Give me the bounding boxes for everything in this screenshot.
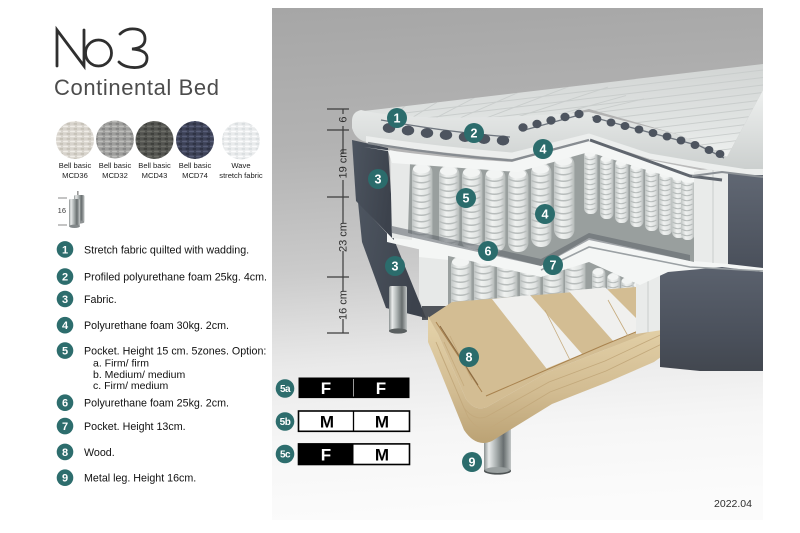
svg-text:F: F [321,379,331,398]
svg-text:3: 3 [375,173,382,187]
svg-text:5b: 5b [280,417,291,428]
svg-text:5: 5 [62,346,68,358]
svg-text:8: 8 [466,351,473,365]
svg-text:a. Firm/ firm: a. Firm/ firm [93,358,149,370]
svg-text:F: F [376,379,386,398]
svg-text:2: 2 [471,127,478,141]
svg-text:2022.04: 2022.04 [714,498,752,510]
svg-text:5c: 5c [280,450,291,461]
svg-text:2: 2 [62,272,68,284]
svg-text:Polyurethane foam 25kg. 2cm.: Polyurethane foam 25kg. 2cm. [84,398,229,410]
svg-text:Pocket. Height 15 cm. 5zones.: Pocket. Height 15 cm. 5zones. Option: [84,346,266,358]
svg-text:5a: 5a [280,384,291,395]
svg-text:19 cm: 19 cm [338,149,350,179]
svg-text:6: 6 [62,398,68,410]
svg-text:1: 1 [62,244,68,256]
svg-text:Profiled polyurethane foam 25k: Profiled polyurethane foam 25kg. 4cm. [84,272,267,284]
svg-text:MCD36: MCD36 [62,171,88,180]
svg-text:5: 5 [463,192,470,206]
svg-text:3: 3 [62,294,68,306]
svg-text:c. Firm/ medium: c. Firm/ medium [93,380,169,392]
svg-text:Bell basic: Bell basic [99,161,132,170]
svg-text:16 cm: 16 cm [338,290,350,320]
svg-text:MCD43: MCD43 [142,171,168,180]
svg-text:9: 9 [62,473,68,485]
svg-text:9: 9 [469,456,476,470]
svg-text:1: 1 [394,112,401,126]
svg-text:F: F [321,445,331,464]
svg-text:Fabric.: Fabric. [84,294,117,306]
svg-text:M: M [375,445,389,464]
svg-text:Bell basic: Bell basic [179,161,212,170]
svg-text:M: M [320,413,334,432]
svg-text:16: 16 [58,206,66,215]
svg-text:Bell basic: Bell basic [138,161,171,170]
svg-text:7: 7 [62,421,68,433]
svg-text:Polyurethane foam 30kg. 2cm.: Polyurethane foam 30kg. 2cm. [84,320,229,332]
svg-text:8: 8 [62,447,68,459]
svg-text:4: 4 [540,143,547,157]
svg-text:stretch fabric: stretch fabric [219,171,263,180]
svg-text:6: 6 [485,245,492,259]
svg-text:Bell basic: Bell basic [59,161,92,170]
svg-text:3: 3 [392,260,399,274]
svg-text:MCD32: MCD32 [102,171,128,180]
svg-text:Continental Bed: Continental Bed [54,75,220,100]
svg-text:4: 4 [62,320,69,332]
svg-text:23 cm: 23 cm [338,222,350,252]
svg-text:7: 7 [550,259,557,273]
svg-text:b. Medium/ medium: b. Medium/ medium [93,369,185,381]
svg-text:4: 4 [542,208,549,222]
svg-text:MCD74: MCD74 [182,171,208,180]
svg-text:Pocket. Height 13cm.: Pocket. Height 13cm. [84,421,186,433]
svg-text:M: M [375,413,389,432]
svg-text:6: 6 [338,116,350,122]
svg-text:Wave: Wave [231,161,250,170]
svg-text:Stretch fabric quilted with wa: Stretch fabric quilted with wadding. [84,244,249,256]
svg-text:Metal leg. Height 16cm.: Metal leg. Height 16cm. [84,473,196,485]
svg-text:Wood.: Wood. [84,447,115,459]
